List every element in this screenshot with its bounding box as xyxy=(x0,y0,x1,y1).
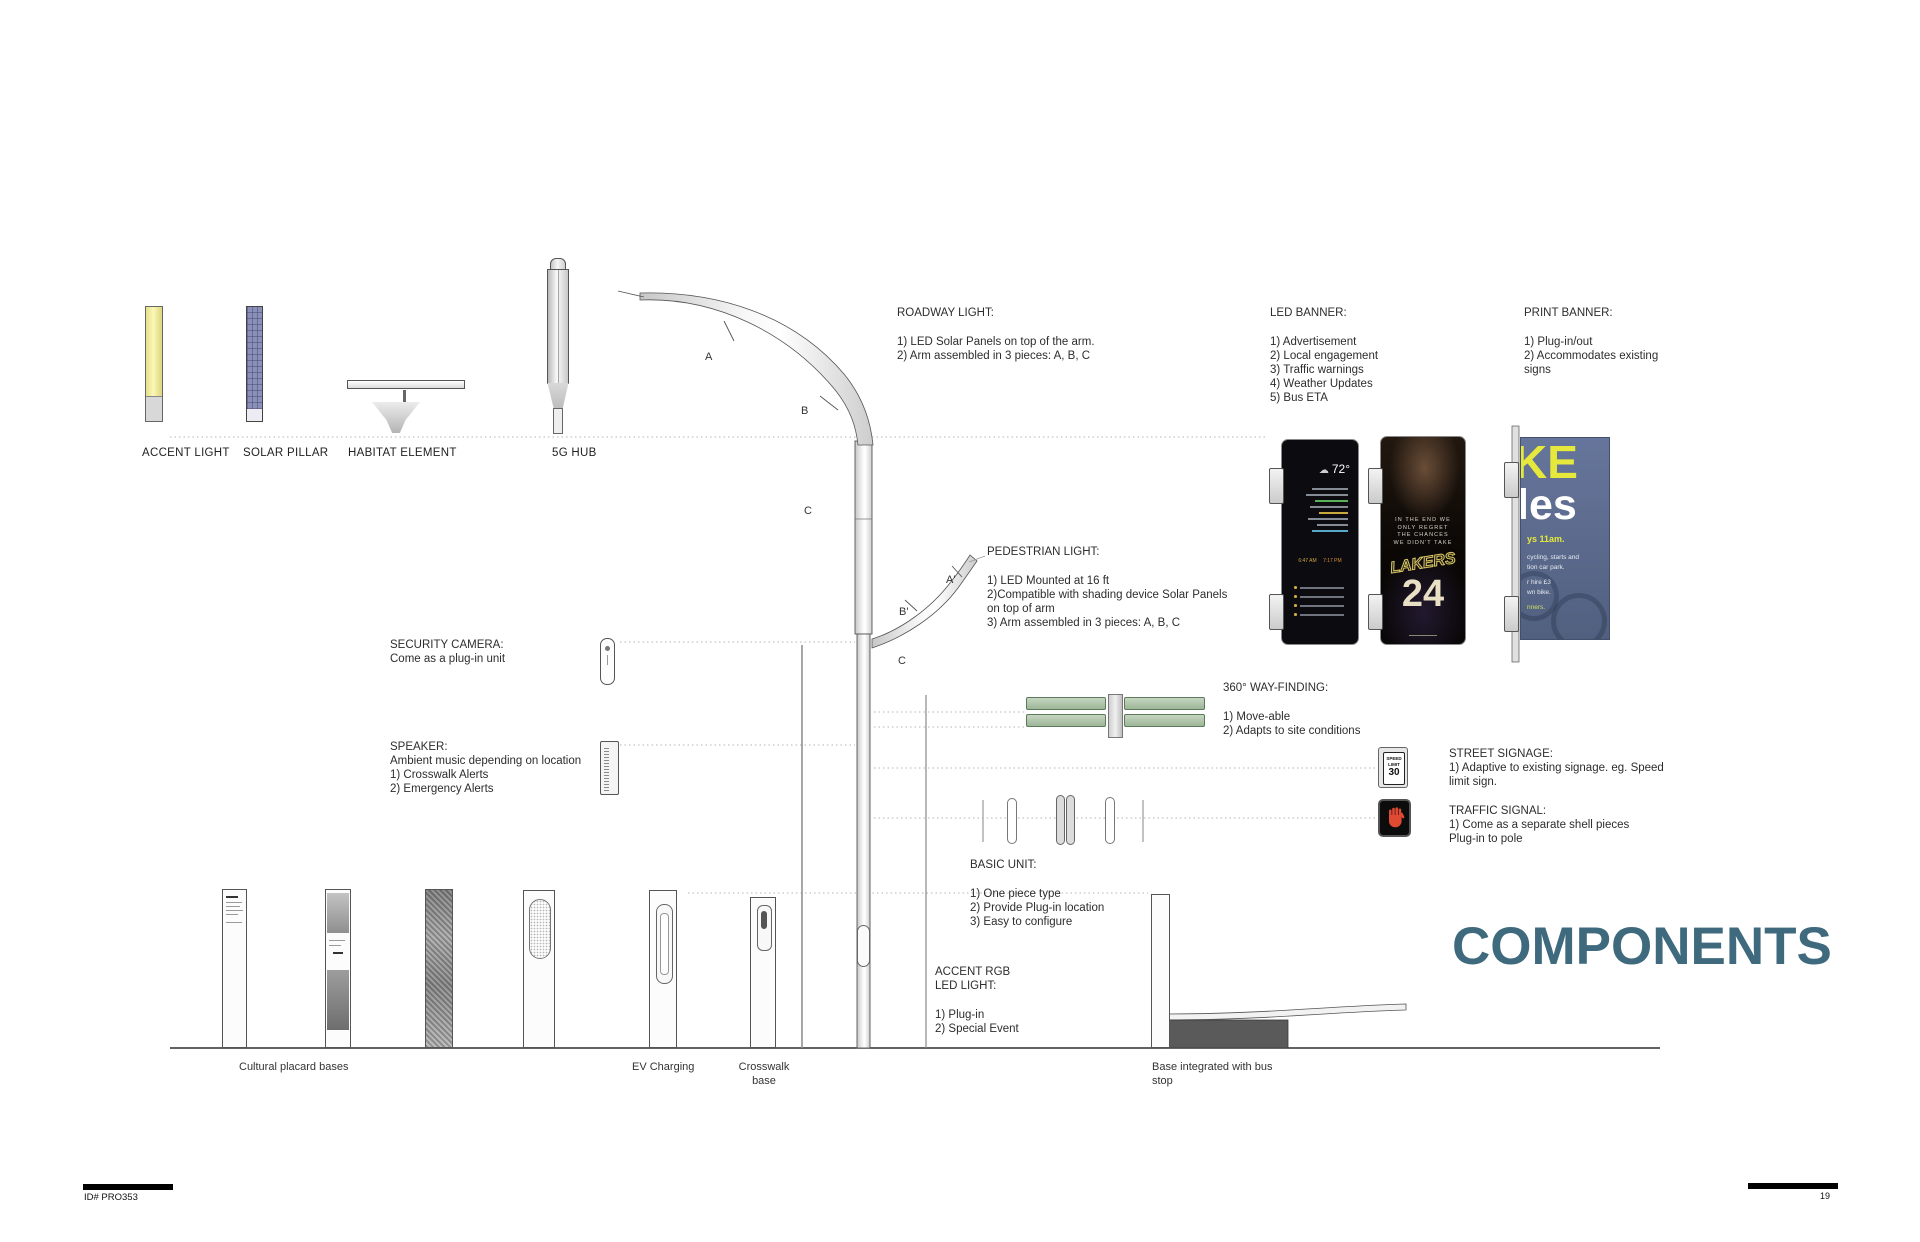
banner-clip xyxy=(1269,468,1284,504)
note-heading: SECURITY CAMERA: xyxy=(390,638,505,652)
placard-rule xyxy=(226,896,238,898)
note-line: Plug-in to pole xyxy=(1449,832,1629,846)
speed-limit-sign: SPEED LIMIT 30 xyxy=(1383,752,1405,785)
note-line: 1) Move-able xyxy=(1223,710,1360,724)
placard-photo xyxy=(327,893,349,933)
footer-bar-right xyxy=(1748,1183,1838,1189)
page-title: COMPONENTS xyxy=(1452,916,1832,977)
poster-line: cycling, starts and xyxy=(1527,554,1579,561)
poster-line: tion car park. xyxy=(1527,564,1565,571)
components-slide: ACCENT LIGHT SOLAR PILLAR HABITAT ELEMEN… xyxy=(0,0,1920,1242)
shell-piece-1 xyxy=(1007,798,1017,844)
sunset-time: 7:17 PM xyxy=(1323,558,1342,564)
accent-rgb-slot xyxy=(857,925,870,967)
note-line: 1) LED Solar Panels on top of the arm. xyxy=(897,335,1095,349)
security-camera-drawing xyxy=(600,638,615,685)
note-heading: BASIC UNIT: xyxy=(970,858,1104,872)
page-number: 19 xyxy=(1820,1191,1830,1201)
weather-row xyxy=(1306,494,1348,496)
note-line: 1) LED Mounted at 16 ft xyxy=(987,574,1227,588)
segment-c-lower: C xyxy=(898,655,906,667)
weather-row xyxy=(1319,512,1348,514)
note-line: 2) Local engagement xyxy=(1270,349,1378,363)
wayfinding-slat-3 xyxy=(1026,714,1106,727)
poster-line: r hire £3 xyxy=(1527,579,1551,586)
weather-row xyxy=(1317,524,1348,526)
ev-charging-label: EV Charging xyxy=(632,1061,694,1075)
forecast-row xyxy=(1300,587,1344,589)
speed-value: 30 xyxy=(1384,767,1404,779)
note-line: 2) Accommodates existing xyxy=(1524,349,1658,363)
security-camera-note: SECURITY CAMERA: Come as a plug-in unit xyxy=(390,638,505,666)
banner-clip xyxy=(1504,596,1519,632)
placard-line xyxy=(226,906,240,907)
crosswalk-slot xyxy=(757,905,772,951)
note-heading: LED LIGHT: xyxy=(935,979,1019,993)
wayfinding-slat-2 xyxy=(1124,697,1205,710)
cloud-icon: ☁ xyxy=(1319,465,1329,476)
quote-text: IN THE END WE ONLY REGRET THE CHANCES WE… xyxy=(1381,517,1465,547)
accent-light-glow xyxy=(146,307,162,399)
shell-piece-3 xyxy=(1066,795,1075,845)
note-line: limit sign. xyxy=(1449,775,1664,789)
street-sign-frame: SPEED LIMIT 30 xyxy=(1378,747,1408,788)
screen-caption-bar xyxy=(1409,635,1437,637)
5g-hub-body xyxy=(547,269,569,384)
charging-port xyxy=(660,913,669,975)
weather-row xyxy=(1312,488,1348,490)
banner-clip xyxy=(1504,462,1519,498)
weather-row xyxy=(1315,500,1348,502)
note-heading: PEDESTRIAN LIGHT: xyxy=(987,545,1227,559)
cultural-base-2 xyxy=(325,889,351,1048)
5g-hub-drawing xyxy=(545,258,569,434)
placard-photo xyxy=(327,970,349,1030)
pedestrian-light-note: PEDESTRIAN LIGHT: 1) LED Mounted at 16 f… xyxy=(987,545,1227,630)
led-banner-sports-screen: IN THE END WE ONLY REGRET THE CHANCES WE… xyxy=(1380,436,1466,645)
cultural-base-4 xyxy=(523,890,555,1048)
footer-bar-left xyxy=(83,1184,173,1190)
weather-row xyxy=(1310,506,1348,508)
forecast-row xyxy=(1300,605,1344,607)
poster-word-top: KE xyxy=(1520,438,1578,486)
dotted-leader-lines xyxy=(170,437,1376,893)
note-line: 1) Come as a separate shell pieces xyxy=(1449,818,1629,832)
segment-b: B xyxy=(801,405,808,417)
note-line: 2) Emergency Alerts xyxy=(390,782,581,796)
wayfinding-slat-1 xyxy=(1026,697,1106,710)
solar-panel-grid xyxy=(247,307,262,409)
segment-b-prime: B' xyxy=(899,606,908,618)
note-heading: STREET SIGNAGE: xyxy=(1449,747,1664,761)
banner-clip xyxy=(1269,594,1284,630)
bike-wheel-silhouette xyxy=(1551,593,1607,640)
print-banner-note: PRINT BANNER: 1) Plug-in/out 2) Accommod… xyxy=(1524,306,1658,377)
placard-line xyxy=(329,945,341,946)
placard-line xyxy=(226,922,242,923)
camera-lens xyxy=(605,646,610,651)
jersey-number: 24 xyxy=(1381,573,1465,616)
accent-light-label: ACCENT LIGHT xyxy=(142,447,230,459)
segment-c: C xyxy=(804,505,812,517)
note-heading: LED BANNER: xyxy=(1270,306,1378,320)
placard-line xyxy=(329,940,345,941)
wayfinding-slat-4 xyxy=(1124,714,1205,727)
cultural-base-3 xyxy=(425,889,453,1048)
forecast-dot xyxy=(1294,613,1297,616)
poster-tagline: ys 11am. xyxy=(1527,534,1565,544)
segment-a-prime: A' xyxy=(946,574,955,586)
forecast-row xyxy=(1300,614,1344,616)
speaker-grille xyxy=(604,746,609,791)
note-line: signs xyxy=(1524,363,1658,377)
5g-hub-taper xyxy=(547,383,569,408)
note-line: 1) Plug-in/out xyxy=(1524,335,1658,349)
note-line: Come as a plug-in unit xyxy=(390,652,505,666)
note-line: 2) Arm assembled in 3 pieces: A, B, C xyxy=(897,349,1095,363)
project-id: ID# PRO353 xyxy=(84,1192,138,1203)
led-banner-weather-screen: ☁72° 6:47 AM 7:17 PM xyxy=(1281,439,1359,645)
bus-bench-seat xyxy=(1168,1004,1406,1020)
roadway-light-note: ROADWAY LIGHT: 1) LED Solar Panels on to… xyxy=(897,306,1095,363)
habitat-element-bar xyxy=(347,380,465,389)
banner-clip xyxy=(1368,468,1383,504)
segment-a: A xyxy=(705,351,712,363)
basic-unit-note: BASIC UNIT: 1) One piece type 2) Provide… xyxy=(970,858,1104,929)
bus-stop-base-label: Base integrated with bus stop xyxy=(1152,1061,1280,1088)
placard-line xyxy=(226,910,243,911)
roadway-arm xyxy=(640,293,873,445)
weather-row xyxy=(1308,518,1348,520)
weather-temp: ☁72° xyxy=(1319,462,1350,476)
street-signage-note: STREET SIGNAGE: 1) Adaptive to existing … xyxy=(1449,747,1664,789)
note-heading: SPEAKER: xyxy=(390,740,581,754)
camera-slit xyxy=(607,655,608,665)
note-line: 2)Compatible with shading device Solar P… xyxy=(987,588,1227,602)
poster-line: wn bike. xyxy=(1527,589,1551,596)
note-line: 3) Arm assembled in 3 pieces: A, B, C xyxy=(987,616,1227,630)
sunrise-sunset: 6:47 AM 7:17 PM xyxy=(1282,558,1358,564)
placard-rule xyxy=(333,952,343,954)
note-heading: PRINT BANNER: xyxy=(1524,306,1658,320)
diagram-linework xyxy=(0,0,1920,1242)
note-line: 5) Bus ETA xyxy=(1270,391,1378,405)
placard-line xyxy=(226,914,238,915)
banner-clip xyxy=(1368,594,1383,630)
bus-stop-pillar xyxy=(1151,894,1170,1048)
speed-word: SPEED xyxy=(1384,756,1404,762)
weather-row xyxy=(1312,530,1348,532)
note-line: 1) One piece type xyxy=(970,887,1104,901)
poster-word-bottom: les xyxy=(1520,482,1577,528)
crosswalk-base-label: Crosswalk base xyxy=(728,1061,800,1088)
cultural-bases-label: Cultural placard bases xyxy=(239,1061,348,1075)
note-line: 3) Easy to configure xyxy=(970,915,1104,929)
habitat-element-label: HABITAT ELEMENT xyxy=(348,447,457,459)
note-line: 3) Traffic warnings xyxy=(1270,363,1378,377)
shell-piece-2 xyxy=(1056,795,1065,845)
note-line: 1) Crosswalk Alerts xyxy=(390,768,581,782)
charging-slot xyxy=(656,904,673,984)
main-pole-lower xyxy=(857,634,870,1048)
forecast-dot xyxy=(1294,604,1297,607)
note-line: 2) Adapts to site conditions xyxy=(1223,724,1360,738)
placard-line xyxy=(226,902,242,903)
5g-hub-label: 5G HUB xyxy=(552,447,597,459)
note-line: 1) Adaptive to existing signage. eg. Spe… xyxy=(1449,761,1664,775)
accent-light-drawing xyxy=(145,306,163,422)
note-line: 1) Advertisement xyxy=(1270,335,1378,349)
sunrise-time: 6:47 AM xyxy=(1298,558,1316,564)
poster-line: nners. xyxy=(1527,604,1545,611)
traffic-signal-drawing xyxy=(1378,799,1411,837)
accent-light-base xyxy=(146,396,162,421)
speaker-note: SPEAKER: Ambient music depending on loca… xyxy=(390,740,581,796)
pedestrian-arm xyxy=(872,555,977,648)
traffic-signal-note: TRAFFIC SIGNAL: 1) Come as a separate sh… xyxy=(1449,804,1629,846)
main-pole-upper xyxy=(855,441,872,634)
note-line: 2) Special Event xyxy=(935,1022,1019,1036)
forecast-dot xyxy=(1294,586,1297,589)
wayfinding-note: 360° WAY-FINDING: 1) Move-able 2) Adapts… xyxy=(1223,681,1360,738)
5g-hub-stem xyxy=(553,408,563,434)
speaker-drawing xyxy=(600,741,619,795)
note-line: Ambient music depending on location xyxy=(390,754,581,768)
note-line: 2) Provide Plug-in location xyxy=(970,901,1104,915)
forecast-dot xyxy=(1294,595,1297,598)
note-heading: TRAFFIC SIGNAL: xyxy=(1449,804,1629,818)
ev-charging-base xyxy=(649,890,677,1048)
crosswalk-button xyxy=(761,911,767,929)
note-line: 4) Weather Updates xyxy=(1270,377,1378,391)
crosswalk-base xyxy=(750,897,776,1048)
stop-hand-icon xyxy=(1386,807,1406,829)
note-line: 1) Plug-in xyxy=(935,1008,1019,1022)
solar-pillar-drawing xyxy=(246,306,263,422)
led-banner-note: LED BANNER: 1) Advertisement 2) Local en… xyxy=(1270,306,1378,405)
note-line: on top of arm xyxy=(987,602,1227,616)
habitat-element-stem xyxy=(403,390,406,403)
note-heading: ACCENT RGB xyxy=(935,965,1019,979)
note-heading: ROADWAY LIGHT: xyxy=(897,306,1095,320)
print-banner-poster: KE les ys 11am. cycling, starts and tion… xyxy=(1520,437,1610,640)
shell-piece-4 xyxy=(1105,797,1115,844)
perforated-badge xyxy=(529,899,551,959)
wayfinding-post xyxy=(1108,694,1123,738)
forecast-row xyxy=(1300,596,1344,598)
cultural-base-1 xyxy=(222,889,247,1048)
solar-pillar-label: SOLAR PILLAR xyxy=(243,447,328,459)
accent-rgb-note: ACCENT RGB LED LIGHT: 1) Plug-in 2) Spec… xyxy=(935,965,1019,1036)
note-heading: 360° WAY-FINDING: xyxy=(1223,681,1360,695)
bus-bench-base xyxy=(1168,1020,1288,1048)
